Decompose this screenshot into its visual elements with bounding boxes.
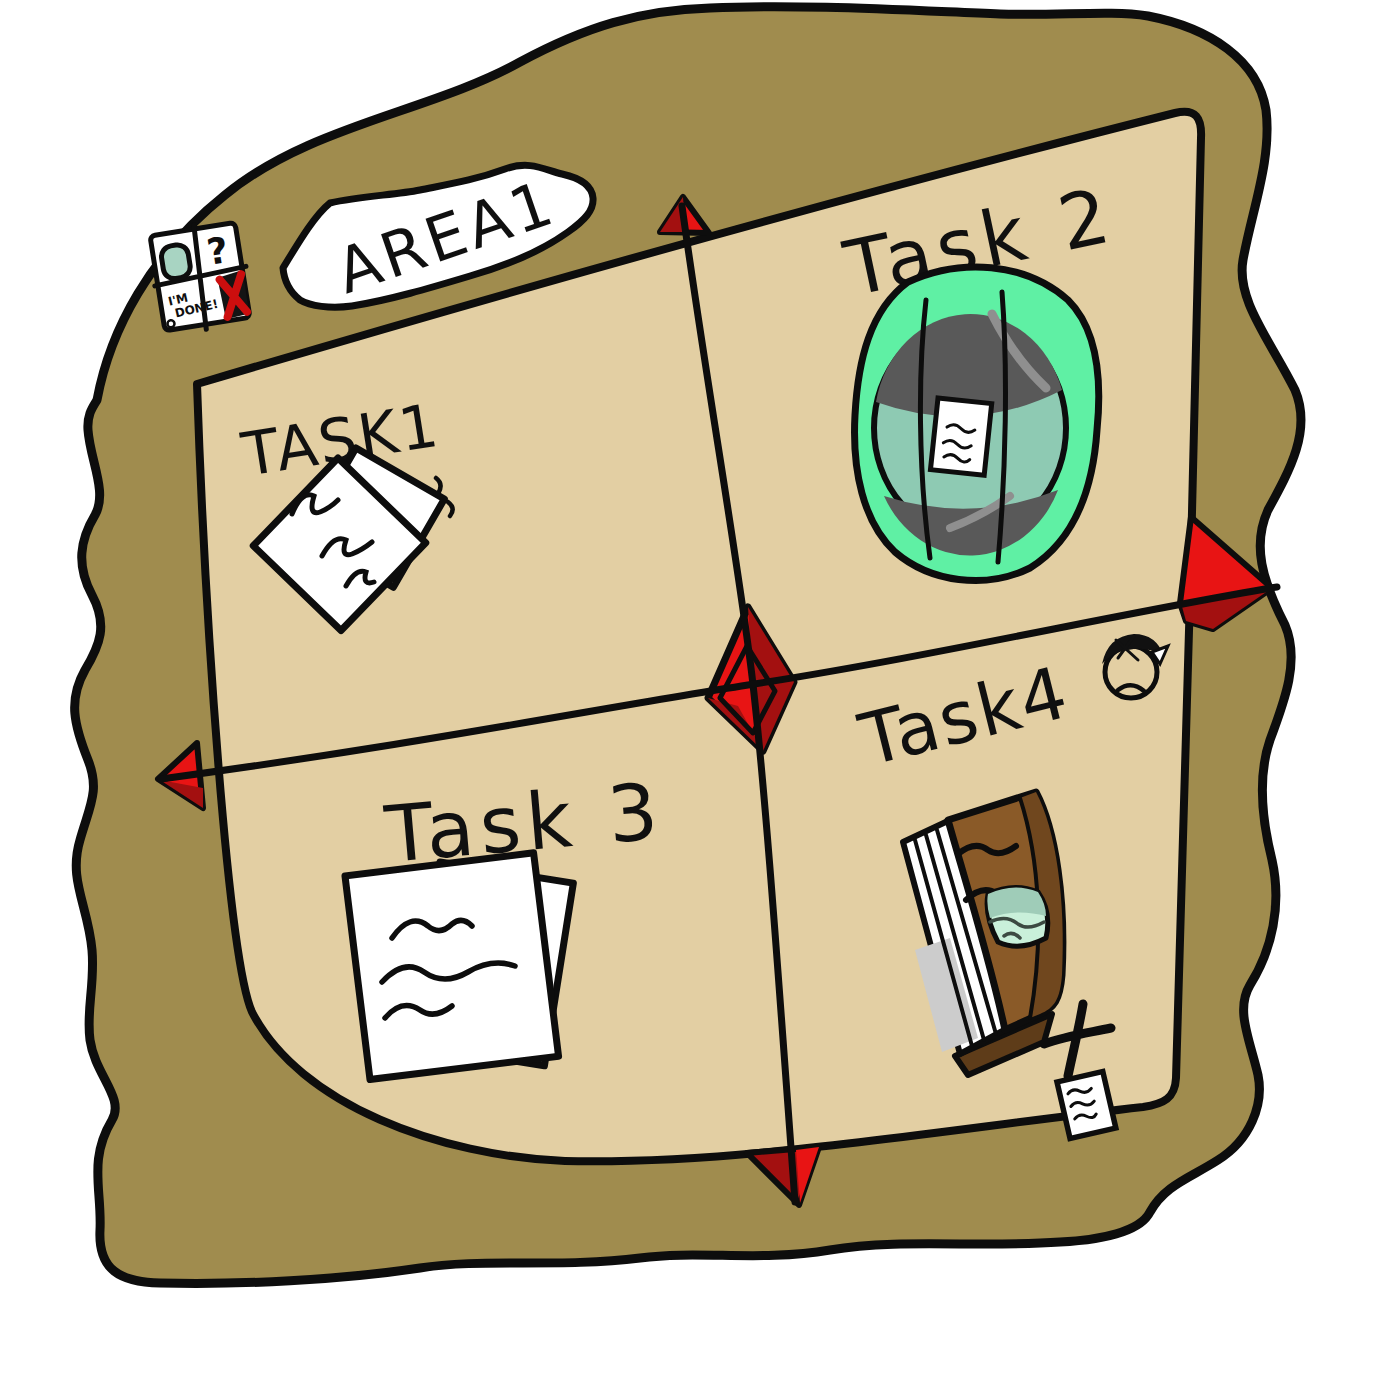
task3-papers [345, 853, 573, 1080]
hand-drawn-map-illustration: ? I'M DONE! AREA1 TASK1 [0, 0, 1378, 1378]
legend-card: ? I'M DONE! [146, 218, 254, 336]
portal-icon [160, 243, 192, 280]
treasure-note [1057, 1071, 1116, 1138]
portal-note [930, 398, 991, 475]
book-emblem [987, 887, 1048, 946]
task2-portal [855, 267, 1099, 581]
hand-drawn-map-page: ? I'M DONE! AREA1 TASK1 [0, 0, 1378, 1378]
